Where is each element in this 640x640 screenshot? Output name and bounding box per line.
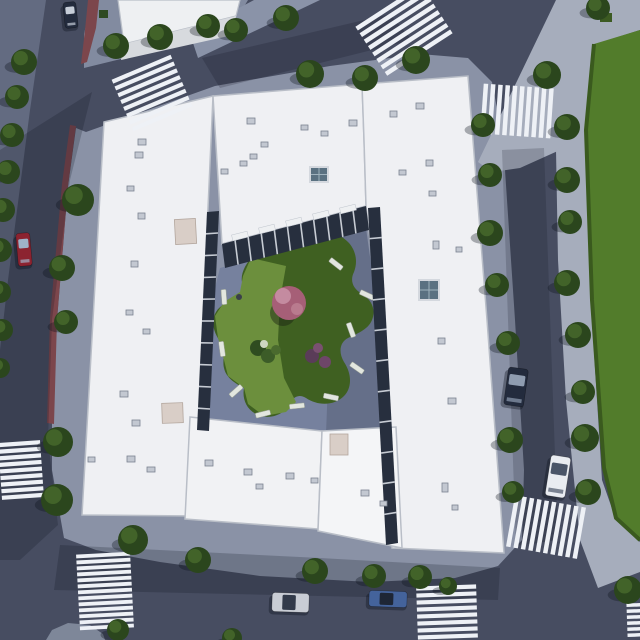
tree-canopy-highlight <box>44 486 62 504</box>
tree-canopy-highlight <box>557 116 571 130</box>
roof-hatch <box>221 169 228 174</box>
tree-canopy-highlight <box>441 578 451 588</box>
utility-box <box>99 10 108 18</box>
bottom-left-wing-roof <box>185 417 322 529</box>
roof-hatch <box>138 139 146 145</box>
tree-canopy-highlight <box>299 62 314 77</box>
car <box>13 232 33 269</box>
tree-canopy-highlight <box>305 560 319 574</box>
aerial-render <box>0 0 640 640</box>
tree-canopy-highlight <box>121 527 138 544</box>
roof-hatch <box>399 170 406 175</box>
car-windshield <box>508 374 525 387</box>
roof-hatch <box>132 420 140 426</box>
roof-bulkhead <box>330 434 348 455</box>
roof-hatch <box>240 161 247 166</box>
roof-hatch <box>244 469 252 475</box>
roof-hatch <box>442 483 448 492</box>
courtyard-facade-left-window <box>199 386 211 387</box>
tree-canopy-highlight <box>150 26 164 40</box>
crosswalk-stripe <box>627 615 640 619</box>
courtyard-facade-right-window <box>370 238 382 239</box>
tree-canopy-highlight <box>46 429 63 446</box>
roof-hatch <box>247 118 255 124</box>
courtyard-shrub <box>313 343 323 353</box>
car-windshield <box>65 6 75 14</box>
roof-bulkhead <box>174 218 196 244</box>
tree-canopy-highlight <box>226 20 239 33</box>
roof-hatch <box>349 120 357 126</box>
roof-hatch <box>135 152 143 158</box>
tree-canopy-highlight <box>568 324 582 338</box>
tree-canopy-highlight <box>276 7 290 21</box>
bench-seat <box>221 289 227 304</box>
courtyard-shrub <box>271 345 281 355</box>
tree-canopy-highlight <box>560 212 573 225</box>
car-windshield <box>379 593 393 605</box>
crosswalk-stripe <box>627 627 640 631</box>
roof-hatch <box>138 213 145 219</box>
courtyard-shrub <box>260 340 268 348</box>
car-windshield <box>18 239 29 249</box>
tree-canopy-highlight <box>2 125 15 138</box>
tree-canopy-highlight <box>14 51 28 65</box>
tree-canopy-highlight <box>364 566 377 579</box>
roof-hatch <box>321 131 328 136</box>
crosswalk-stripe <box>627 633 640 637</box>
tree-canopy-highlight <box>500 429 514 443</box>
scene <box>0 0 640 640</box>
roof-hatch <box>429 191 436 196</box>
tree-canopy-highlight <box>498 333 511 346</box>
tree-canopy-highlight <box>480 222 494 236</box>
tree-canopy-highlight <box>557 272 571 286</box>
street-tree <box>0 123 24 147</box>
tree-canopy-highlight <box>504 483 516 495</box>
roof-hatch <box>147 467 155 472</box>
roof-hatch <box>301 125 308 130</box>
roof-hatch <box>127 456 135 462</box>
roof-hatch <box>361 490 369 496</box>
tree-canopy-highlight <box>198 16 211 29</box>
roof-hatch <box>311 478 318 483</box>
roof-hatch <box>448 398 456 404</box>
flowering-tree <box>291 303 303 315</box>
tree-canopy-highlight <box>52 257 66 271</box>
tree-canopy-highlight <box>65 186 83 204</box>
flowering-tree <box>275 288 291 304</box>
roof-hatch <box>426 160 433 166</box>
roof-hatch <box>438 338 445 344</box>
courtyard-bench <box>221 289 227 304</box>
roof-hatch <box>390 111 397 117</box>
car-windshield <box>282 595 296 610</box>
roof-hatch <box>261 142 268 147</box>
tree-canopy-highlight <box>574 426 589 441</box>
tree-canopy-highlight <box>188 549 202 563</box>
tree-canopy-highlight <box>573 382 586 395</box>
tree-canopy-highlight <box>410 567 423 580</box>
roof-hatch <box>456 247 462 252</box>
tree-canopy-highlight <box>487 275 500 288</box>
car <box>366 590 408 610</box>
crosswalk-stripe <box>627 609 640 613</box>
roof-hatch <box>380 501 387 506</box>
courtyard-facade-left-window <box>206 233 218 234</box>
roof-hatch <box>126 310 133 315</box>
tree-canopy-highlight <box>224 630 235 640</box>
roof-hatch <box>416 103 424 109</box>
courtyard-facade-left-window <box>205 255 217 256</box>
tree-canopy-highlight <box>617 578 632 593</box>
courtyard-shrub <box>319 356 331 368</box>
tree-canopy-highlight <box>405 48 420 63</box>
roof-hatch <box>452 505 458 510</box>
tree-canopy-highlight <box>106 35 120 49</box>
tree-canopy-highlight <box>480 165 493 178</box>
roof-bulkhead <box>162 403 184 424</box>
tree-canopy-highlight <box>578 481 592 495</box>
tree-canopy-highlight <box>7 87 20 100</box>
tree-canopy-highlight <box>536 63 551 78</box>
car <box>269 592 310 615</box>
roof-hatch <box>205 460 213 466</box>
roof-skylight <box>418 279 440 301</box>
courtyard-facade-left-window <box>198 408 210 409</box>
roof-hatch <box>433 241 439 249</box>
tree-canopy-highlight <box>557 169 571 183</box>
roof-hatch <box>143 329 150 334</box>
tree-canopy-highlight <box>473 115 486 128</box>
roof-hatch <box>120 391 128 397</box>
roof-hatch <box>250 154 257 159</box>
roof-hatch <box>88 457 95 462</box>
roof-hatch <box>286 473 294 479</box>
tree-canopy-highlight <box>56 312 69 325</box>
tree-canopy-highlight <box>109 621 121 633</box>
roof-hatch <box>256 484 263 489</box>
crosswalk-stripe <box>627 621 640 625</box>
tree-canopy-highlight <box>355 67 369 81</box>
roof-hatch <box>131 261 138 267</box>
courtyard-shrub <box>236 294 242 300</box>
roof-skylight <box>309 166 329 183</box>
roof-hatch <box>127 186 134 191</box>
